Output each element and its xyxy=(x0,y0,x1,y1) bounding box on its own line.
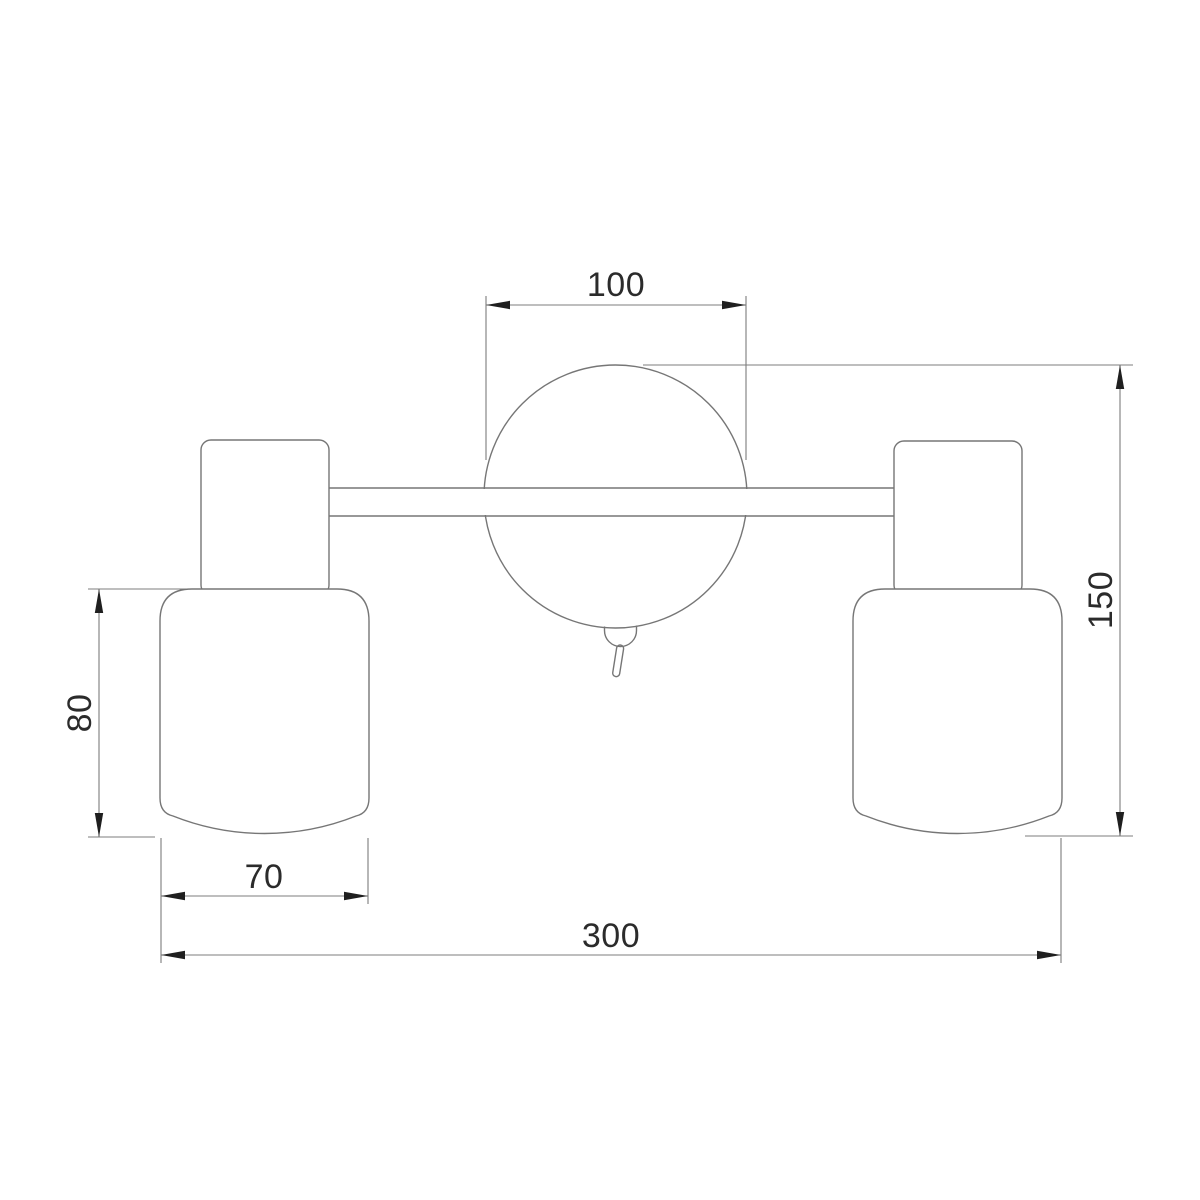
arrow-left-icon xyxy=(161,951,185,959)
cross-bar xyxy=(329,488,894,516)
dim-label-150: 150 xyxy=(1082,571,1120,629)
cross-bar-fill xyxy=(329,489,894,515)
right-lamp-shade xyxy=(853,589,1062,833)
arrow-up-icon xyxy=(1116,365,1124,389)
arrow-left-icon xyxy=(486,301,510,309)
arrow-left-icon xyxy=(161,892,185,900)
left-lamp-shade xyxy=(160,589,369,833)
arrow-down-icon xyxy=(95,813,103,837)
dimension-overall-height: 150 xyxy=(1082,365,1124,836)
arrow-right-icon xyxy=(722,301,746,309)
dimension-shade-width: 70 xyxy=(161,858,368,900)
dim-label-300: 300 xyxy=(582,917,640,955)
dimension-overall-width: 300 xyxy=(161,917,1061,959)
left-lamp-holder xyxy=(201,440,329,595)
dim-label-100: 100 xyxy=(587,266,645,304)
dim-label-80: 80 xyxy=(61,694,99,733)
technical-drawing-canvas: 100 150 80 70 xyxy=(0,0,1200,1200)
switch-toggle xyxy=(612,644,624,677)
fixture xyxy=(160,365,1062,833)
right-lamp-holder xyxy=(894,441,1022,595)
arrow-right-icon xyxy=(1037,951,1061,959)
arrow-up-icon xyxy=(95,589,103,613)
drawing-page: 100 150 80 70 xyxy=(0,0,1200,1200)
switch-dome xyxy=(605,626,637,647)
arrow-down-icon xyxy=(1116,812,1124,836)
arrow-right-icon xyxy=(344,892,368,900)
dimension-shade-height: 80 xyxy=(61,589,103,837)
dim-label-70: 70 xyxy=(245,858,284,896)
dimension-canopy-diameter: 100 xyxy=(486,266,746,309)
